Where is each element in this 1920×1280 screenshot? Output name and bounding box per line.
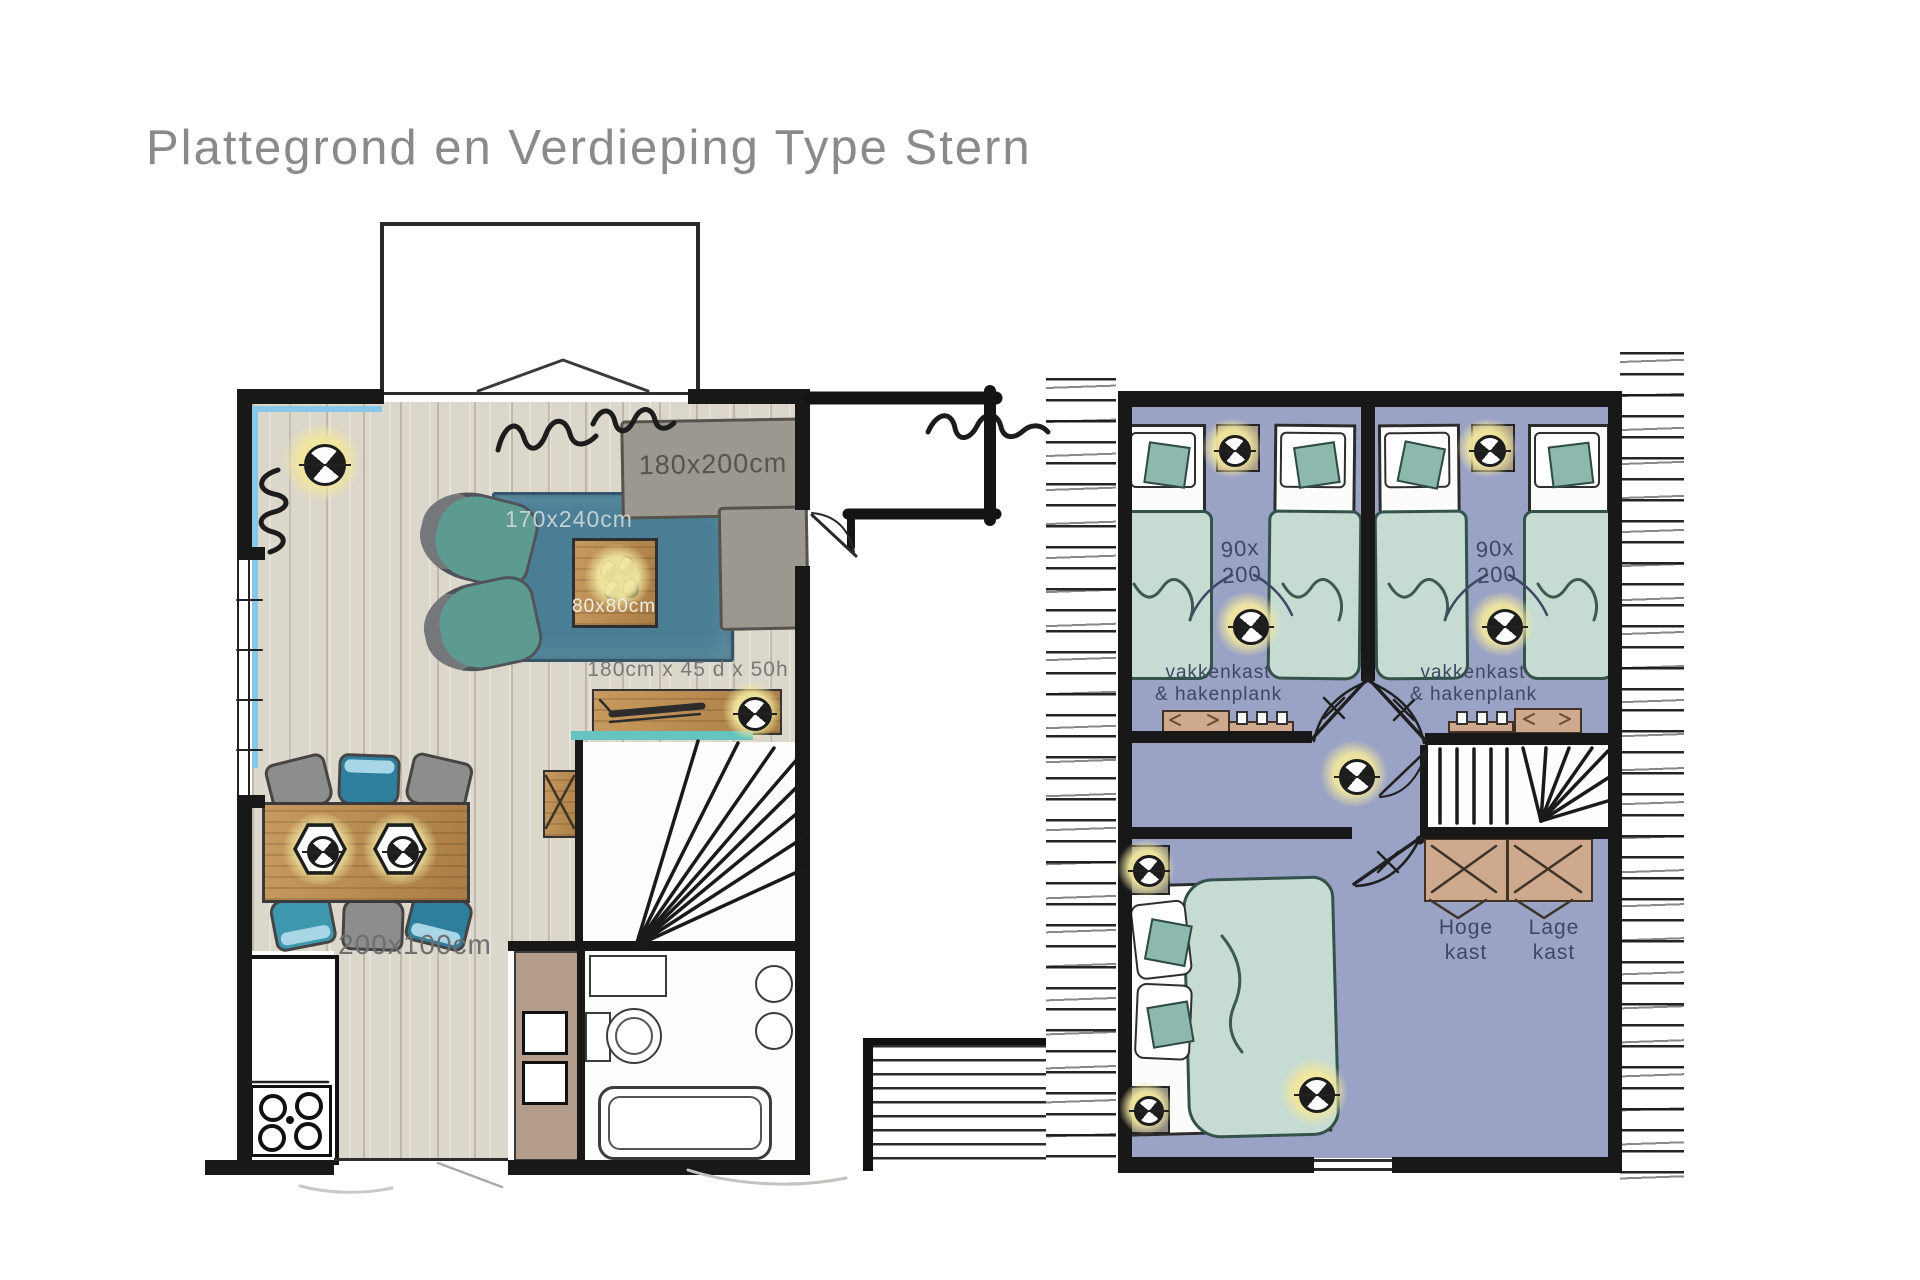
- closet-label: vakkenkast & hakenplank: [1155, 662, 1281, 707]
- rug-size-label: 170x240cm: [505, 506, 633, 533]
- low-cabinet-label: Lage kast: [1516, 916, 1592, 966]
- sideboard-size-label: 180cm x 45 d x 50h: [558, 658, 818, 683]
- coffee-table-size-label: 80x80cm: [572, 596, 652, 618]
- squiggle-marks: [261, 409, 1048, 552]
- pencil-marks: [300, 1163, 846, 1192]
- landing-door-swings: [1312, 674, 1426, 743]
- floorplan-canvas: Plattegrond en Verdieping Type Stern 170…: [0, 0, 1920, 1280]
- cabinet-cross-marks: [546, 776, 1581, 918]
- closet-label: vakkenkast & hakenplank: [1410, 662, 1536, 707]
- hand-drawn-overlay: [0, 0, 1920, 1280]
- master-door-swing: [1354, 836, 1424, 886]
- bed-size-label: 90x 200: [1459, 534, 1532, 591]
- high-cabinet-label: Hoge kast: [1428, 916, 1504, 966]
- porch-door-mark: [478, 360, 648, 391]
- shelf-chevrons: [1170, 714, 1570, 725]
- blanket-folds: [1134, 579, 1597, 1052]
- dining-table-size-label: 200x100cm: [330, 928, 500, 961]
- upper-stairs-treads: [1440, 748, 1611, 823]
- soundbar: [600, 700, 702, 722]
- ground-stairs-treads: [636, 741, 806, 946]
- bed-size-label: 90x 200: [1204, 534, 1277, 591]
